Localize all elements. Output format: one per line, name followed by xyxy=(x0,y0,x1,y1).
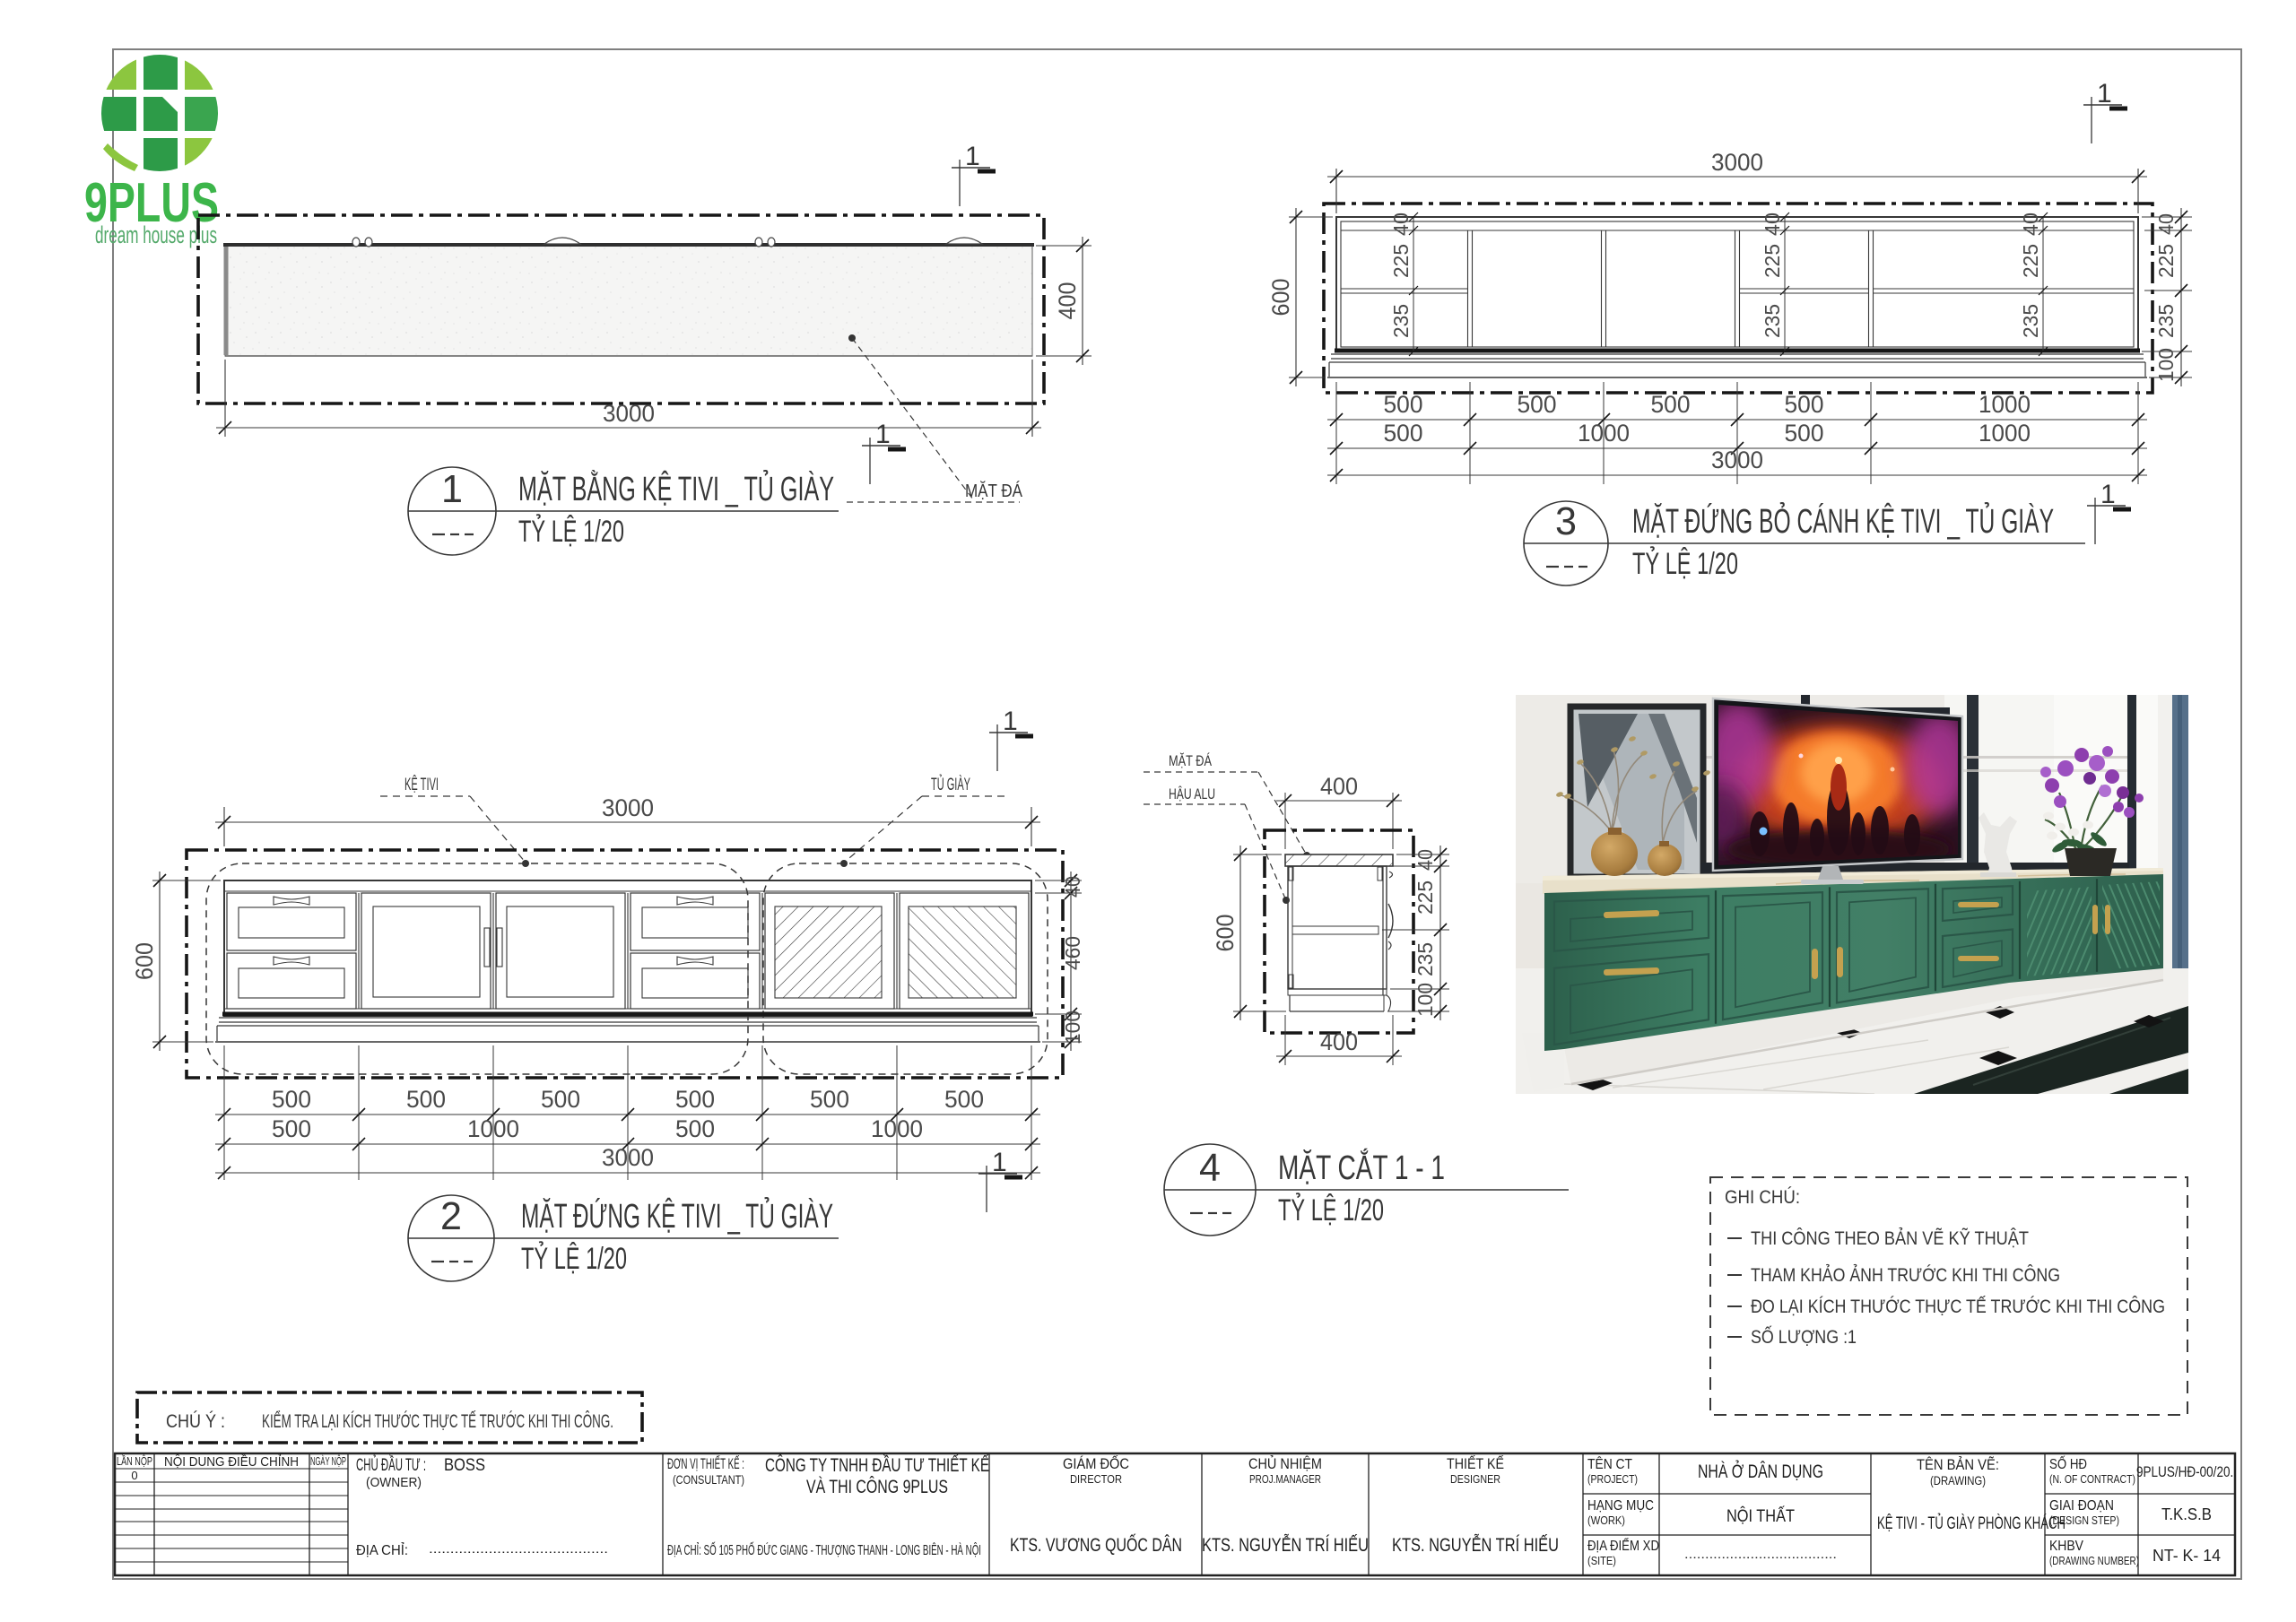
svg-text:NT- K- 14: NT- K- 14 xyxy=(2152,1547,2221,1565)
svg-text:ĐỊA CHỈ: SỐ 105 PHỐ ĐỨC GIANG: ĐỊA CHỈ: SỐ 105 PHỐ ĐỨC GIANG - THƯỢNG T… xyxy=(667,1540,981,1558)
svg-text:1: 1 xyxy=(2100,480,2116,509)
svg-text:1000: 1000 xyxy=(1979,420,2031,447)
svg-text:MẶT ĐỨNG KỆ TIVI _ TỦ GIÀY: MẶT ĐỨNG KỆ TIVI _ TỦ GIÀY xyxy=(521,1196,833,1236)
svg-text:3000: 3000 xyxy=(1711,149,1763,176)
svg-text:500: 500 xyxy=(1785,420,1824,447)
svg-text:CHÚ Ý :: CHÚ Ý : xyxy=(166,1411,225,1432)
svg-text:1: 1 xyxy=(992,1148,1007,1177)
svg-text:TỶ LỆ 1/20: TỶ LỆ 1/20 xyxy=(1278,1193,1384,1227)
svg-text:100: 100 xyxy=(1413,983,1437,1017)
svg-text:400: 400 xyxy=(1054,282,1081,320)
svg-text:(WORK): (WORK) xyxy=(1587,1514,1625,1527)
svg-text:KỆ TIVI: KỆ TIVI xyxy=(404,775,439,794)
svg-text:225: 225 xyxy=(1389,244,1413,278)
svg-text:NHÀ Ở DÂN DỤNG: NHÀ Ở DÂN DỤNG xyxy=(1698,1461,1823,1482)
svg-text:TỶ LỆ 1/20: TỶ LỆ 1/20 xyxy=(521,1242,627,1276)
svg-text:500: 500 xyxy=(406,1086,446,1113)
svg-text:1: 1 xyxy=(441,467,463,511)
svg-text:KTS. NGUYỄN TRÍ HIẾU: KTS. NGUYỄN TRÍ HIẾU xyxy=(1202,1535,1369,1556)
svg-text:3000: 3000 xyxy=(1711,447,1763,473)
svg-text:DESIGNER: DESIGNER xyxy=(1450,1472,1500,1486)
svg-text:9PLUS/HĐ-00/20..: 9PLUS/HĐ-00/20.. xyxy=(2136,1463,2237,1480)
svg-text:THI CÔNG THEO BẢN VẼ KỸ THUẬT: THI CÔNG THEO BẢN VẼ KỸ THUẬT xyxy=(1751,1227,2029,1249)
svg-text:500: 500 xyxy=(272,1086,311,1113)
svg-text:SỐ HĐ: SỐ HĐ xyxy=(2049,1454,2087,1472)
svg-text:225: 225 xyxy=(2019,244,2042,278)
svg-text:3000: 3000 xyxy=(603,400,655,427)
svg-text:40: 40 xyxy=(1761,213,1784,236)
svg-text:1000: 1000 xyxy=(1979,391,2031,418)
svg-text:ĐỊA CHỈ:: ĐỊA CHỈ: xyxy=(356,1541,408,1558)
svg-text:235: 235 xyxy=(2154,304,2178,338)
svg-text:KHBV: KHBV xyxy=(2049,1539,2083,1554)
svg-text:3000: 3000 xyxy=(602,794,654,821)
svg-text:(DRAWING NUMBER): (DRAWING NUMBER) xyxy=(2049,1554,2139,1567)
svg-text:600: 600 xyxy=(1212,915,1239,952)
svg-text:400: 400 xyxy=(1320,773,1358,800)
svg-text:40: 40 xyxy=(2019,213,2042,236)
svg-text:GHI CHÚ:: GHI CHÚ: xyxy=(1725,1187,1800,1208)
svg-text:(CONSULTANT): (CONSULTANT) xyxy=(673,1472,744,1487)
svg-text:TỦ GIÀY: TỦ GIÀY xyxy=(931,775,970,794)
svg-text:600: 600 xyxy=(131,942,158,980)
svg-text:500: 500 xyxy=(1384,420,1423,447)
svg-text:400: 400 xyxy=(1320,1028,1358,1055)
svg-text:MẶT BẰNG KỆ TIVI _ TỦ GIÀY: MẶT BẰNG KỆ TIVI _ TỦ GIÀY xyxy=(518,469,834,508)
svg-text:1: 1 xyxy=(2097,79,2112,108)
svg-text:500: 500 xyxy=(1384,391,1423,418)
svg-text:500: 500 xyxy=(944,1086,984,1113)
svg-text:..............................: ..................................... xyxy=(1684,1547,1837,1561)
svg-text:235: 235 xyxy=(1389,304,1413,338)
svg-text:HẬU ALU: HẬU ALU xyxy=(1169,785,1215,802)
svg-text:MẶT CẮT 1 - 1: MẶT CẮT 1 - 1 xyxy=(1278,1148,1445,1187)
svg-text:PROJ.MANAGER: PROJ.MANAGER xyxy=(1249,1472,1321,1486)
svg-text:GIÁM ĐỐC: GIÁM ĐỐC xyxy=(1063,1454,1129,1472)
svg-text:3: 3 xyxy=(1555,499,1577,543)
svg-text:TÊN CT: TÊN CT xyxy=(1587,1455,1632,1472)
svg-text:TỶ LỆ 1/20: TỶ LỆ 1/20 xyxy=(518,515,624,549)
svg-text:500: 500 xyxy=(541,1086,580,1113)
svg-text:0: 0 xyxy=(131,1469,137,1482)
svg-text:100: 100 xyxy=(2154,348,2178,382)
svg-text:1: 1 xyxy=(965,142,980,171)
svg-text:NỘI THẤT: NỘI THẤT xyxy=(1726,1506,1795,1526)
svg-text:MẶT ĐÁ: MẶT ĐÁ xyxy=(1169,752,1212,769)
svg-text:(DRAWING): (DRAWING) xyxy=(1930,1473,1986,1488)
svg-text:1000: 1000 xyxy=(467,1115,519,1142)
svg-text:T.K.S.B: T.K.S.B xyxy=(2161,1505,2212,1523)
svg-text:225: 225 xyxy=(1761,244,1784,278)
svg-text:TÊN BẢN VẼ:: TÊN BẢN VẼ: xyxy=(1917,1456,1999,1473)
svg-text:(DESIGN STEP): (DESIGN STEP) xyxy=(2049,1514,2119,1527)
svg-text:MẶT ĐỨNG BỎ CÁNH KỆ TIVI _ TỦ: MẶT ĐỨNG BỎ CÁNH KỆ TIVI _ TỦ GIÀY xyxy=(1632,501,2054,541)
svg-text:CHỦ NHIỆM: CHỦ NHIỆM xyxy=(1248,1455,1322,1472)
svg-text:235: 235 xyxy=(1761,304,1784,338)
svg-text:500: 500 xyxy=(810,1086,849,1113)
svg-text:MẶT ĐÁ: MẶT ĐÁ xyxy=(965,481,1023,501)
svg-text:..............................: ........................................… xyxy=(429,1541,608,1556)
svg-text:225: 225 xyxy=(1413,880,1437,915)
svg-text:HẠNG MỤC: HẠNG MỤC xyxy=(1587,1498,1654,1514)
svg-text:40: 40 xyxy=(1389,213,1413,236)
svg-text:ĐƠN VỊ THIẾT KẾ :: ĐƠN VỊ THIẾT KẾ : xyxy=(667,1455,744,1472)
svg-text:40: 40 xyxy=(1413,849,1437,871)
svg-text:600: 600 xyxy=(1267,279,1294,317)
svg-text:THIẾT KẾ: THIẾT KẾ xyxy=(1447,1455,1504,1472)
svg-text:4: 4 xyxy=(1199,1146,1221,1190)
svg-text:NGÀY NỘP: NGÀY NỘP xyxy=(310,1454,346,1468)
svg-text:(PROJECT): (PROJECT) xyxy=(1587,1472,1638,1486)
svg-text:500: 500 xyxy=(675,1115,715,1142)
svg-text:2: 2 xyxy=(440,1194,462,1238)
svg-text:GIAI ĐOẠN: GIAI ĐOẠN xyxy=(2049,1498,2114,1514)
svg-text:(OWNER): (OWNER) xyxy=(366,1475,422,1490)
svg-text:SỐ LƯỢNG :1: SỐ LƯỢNG :1 xyxy=(1751,1326,1857,1348)
svg-text:KỆ TIVI - TỦ GIÀY PHÒNG KHÁCH: KỆ TIVI - TỦ GIÀY PHÒNG KHÁCH xyxy=(1877,1514,2066,1533)
svg-text:CÔNG TY TNHH ĐẦU TƯ THIẾT KẾ: CÔNG TY TNHH ĐẦU TƯ THIẾT KẾ xyxy=(765,1455,989,1476)
svg-text:DIRECTOR: DIRECTOR xyxy=(1070,1472,1122,1486)
svg-text:1000: 1000 xyxy=(871,1115,923,1142)
svg-text:225: 225 xyxy=(2154,244,2178,278)
svg-text:ĐỊA ĐIỂM XD: ĐỊA ĐIỂM XD xyxy=(1587,1537,1659,1554)
svg-text:NỘI DUNG ĐIỀU CHỈNH: NỘI DUNG ĐIỀU CHỈNH xyxy=(164,1454,299,1470)
svg-text:235: 235 xyxy=(1413,942,1437,976)
svg-text:500: 500 xyxy=(1785,391,1824,418)
svg-text:500: 500 xyxy=(1518,391,1557,418)
svg-text:KTS. VƯƠNG QUỐC DÂN: KTS. VƯƠNG QUỐC DÂN xyxy=(1010,1534,1182,1556)
svg-text:1: 1 xyxy=(1003,707,1018,736)
svg-text:(SITE): (SITE) xyxy=(1587,1554,1616,1567)
svg-text:460: 460 xyxy=(1061,936,1084,970)
svg-text:ĐO LẠI KÍCH THƯỚC THỰC TẾ TRƯỚ: ĐO LẠI KÍCH THƯỚC THỰC TẾ TRƯỚC KHI THI … xyxy=(1751,1297,2165,1317)
svg-text:3000: 3000 xyxy=(602,1144,654,1171)
svg-text:BOSS: BOSS xyxy=(444,1456,485,1475)
svg-text:40: 40 xyxy=(1061,876,1084,898)
svg-text:VÀ THI CÔNG 9PLUS: VÀ THI CÔNG 9PLUS xyxy=(806,1477,948,1497)
svg-text:100: 100 xyxy=(1061,1010,1084,1045)
svg-text:KTS. NGUYỄN TRÍ HIẾU: KTS. NGUYỄN TRÍ HIẾU xyxy=(1392,1535,1559,1556)
svg-text:KIỂM TRA LẠI KÍCH THƯỚC THỰC T: KIỂM TRA LẠI KÍCH THƯỚC THỰC TẾ TRƯỚC KH… xyxy=(262,1411,613,1432)
svg-text:500: 500 xyxy=(675,1086,715,1113)
svg-text:CHỦ ĐẦU TƯ :: CHỦ ĐẦU TƯ : xyxy=(356,1455,426,1475)
svg-text:235: 235 xyxy=(2019,304,2042,338)
svg-text:40: 40 xyxy=(2154,213,2178,235)
svg-text:THAM KHẢO ẢNH TRƯỚC KHI THI CÔ: THAM KHẢO ẢNH TRƯỚC KHI THI CÔNG xyxy=(1751,1265,2060,1286)
svg-text:LẦN NỘP: LẦN NỘP xyxy=(117,1454,152,1468)
svg-text:500: 500 xyxy=(272,1115,311,1142)
svg-text:1: 1 xyxy=(875,420,891,449)
svg-text:500: 500 xyxy=(1651,391,1691,418)
svg-text:TỶ LỆ 1/20: TỶ LỆ 1/20 xyxy=(1632,547,1738,581)
svg-text:(N. OF CONTRACT): (N. OF CONTRACT) xyxy=(2049,1472,2135,1486)
svg-text:1000: 1000 xyxy=(1578,420,1630,447)
